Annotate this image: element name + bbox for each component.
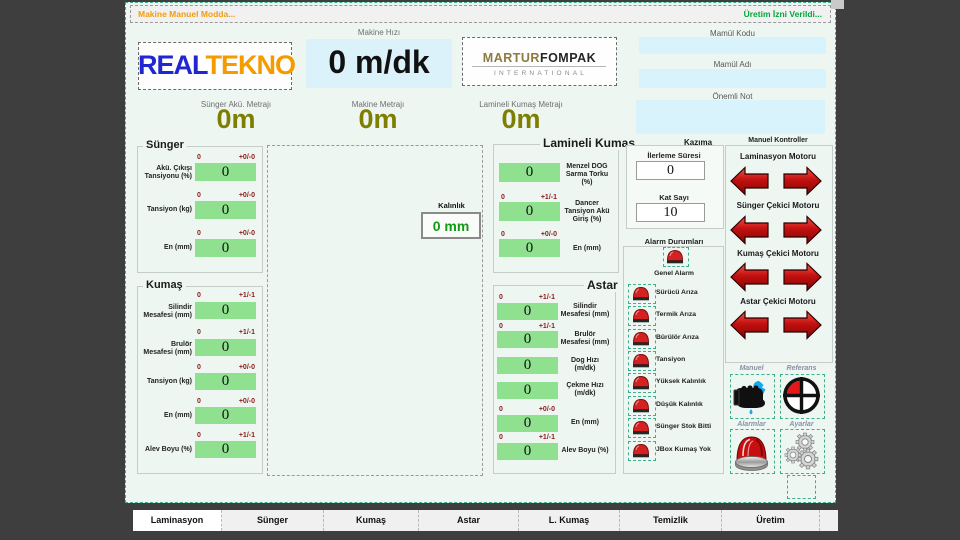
svg-text:Astar Çekici Motoru: Astar Çekici Motoru — [740, 297, 816, 306]
svg-text:Kumaş Çekici Motoru: Kumaş Çekici Motoru — [737, 249, 819, 258]
svg-text:Sünger Çekici Motoru: Sünger Çekici Motoru — [737, 201, 820, 210]
svg-text:Laminasyon Motoru: Laminasyon Motoru — [740, 152, 816, 161]
